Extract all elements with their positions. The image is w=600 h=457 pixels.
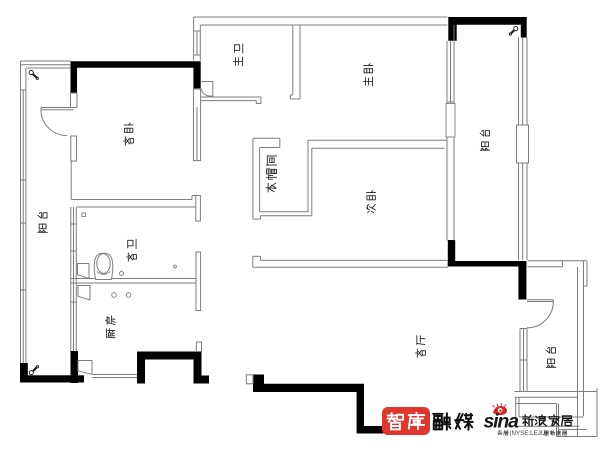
svg-text:(NYSE:LEJU): (NYSE:LEJU) bbox=[510, 430, 548, 437]
svg-text:sina: sina bbox=[484, 411, 520, 433]
